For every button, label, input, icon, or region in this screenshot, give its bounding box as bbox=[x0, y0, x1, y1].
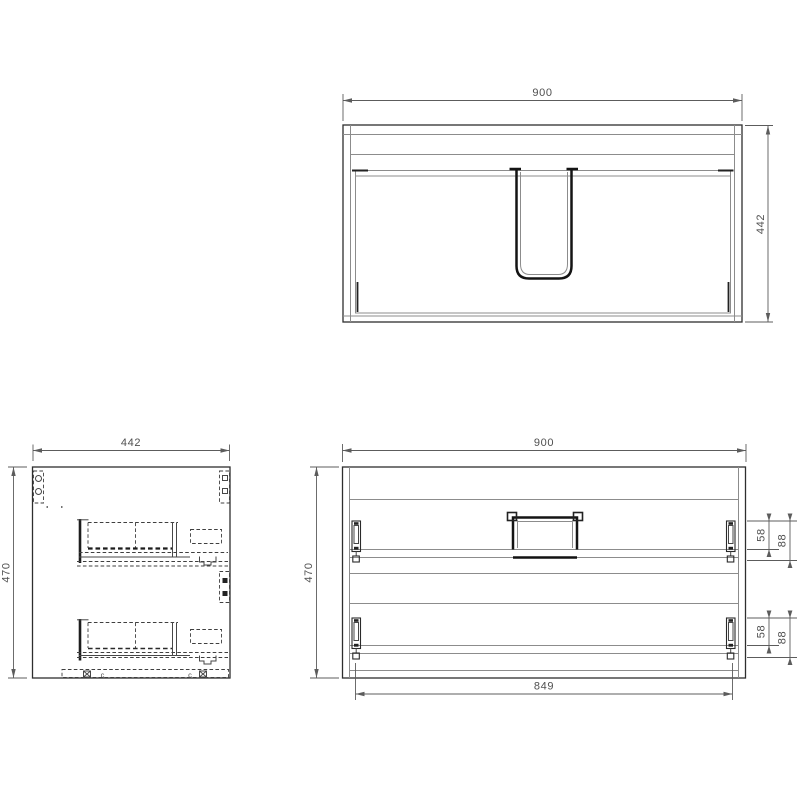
front-view: 900 470 bbox=[303, 437, 797, 700]
dim-side-width-label: 442 bbox=[121, 437, 141, 449]
dim-plan-depth: 442 bbox=[745, 126, 773, 323]
drawer-runner-bracket bbox=[352, 618, 361, 659]
drawer-runner-bracket bbox=[727, 618, 736, 659]
drawer-runner-bracket bbox=[352, 521, 361, 562]
upper-drawer-side-profile bbox=[77, 519, 228, 566]
cam-lock-icon bbox=[84, 671, 91, 677]
dim-front-height-label: 470 bbox=[303, 562, 315, 582]
dim-plan-depth-label: 442 bbox=[755, 214, 767, 234]
dim-front-inner-width-label: 849 bbox=[534, 681, 554, 693]
dim-side-width: 442 bbox=[33, 437, 230, 461]
dim-lower-rail-inner-label: 58 bbox=[756, 625, 768, 638]
drawer-runner-bracket bbox=[727, 521, 736, 562]
cabinet-technical-drawing: 900 442 442 bbox=[0, 0, 800, 800]
hanger-bracket-left bbox=[34, 471, 63, 507]
clip-label-right: c bbox=[188, 671, 192, 680]
dim-front-width: 900 bbox=[343, 437, 747, 462]
dim-lower-rail-offsets: 58 88 bbox=[747, 611, 797, 666]
dim-front-inner-width: 849 bbox=[356, 663, 733, 700]
dim-side-height: 470 bbox=[1, 467, 28, 678]
dim-plan-width-label: 900 bbox=[532, 87, 552, 99]
dim-upper-rail-inner-label: 58 bbox=[756, 528, 768, 541]
plan-view: 900 442 bbox=[343, 87, 773, 322]
technical-drawing-canvas: 900 442 442 bbox=[0, 0, 800, 800]
dim-upper-rail-offsets: 58 88 bbox=[747, 514, 797, 569]
runner-rear-mount bbox=[191, 530, 222, 544]
side-rail-hardware-right bbox=[220, 572, 230, 603]
clip-label-left: c bbox=[101, 671, 105, 680]
hanger-bracket-right bbox=[220, 471, 230, 503]
side-view: 442 470 bbox=[1, 437, 231, 680]
dim-plan-width: 900 bbox=[343, 87, 742, 121]
dim-front-height: 470 bbox=[303, 467, 339, 678]
runner-hook bbox=[200, 656, 217, 665]
sink-drain-cutout bbox=[510, 169, 579, 279]
runner-rear-mount bbox=[191, 630, 222, 644]
drain-notch bbox=[508, 513, 583, 558]
front-cabinet-body bbox=[343, 467, 746, 678]
cam-lock-icon bbox=[200, 671, 207, 677]
lower-drawer-side-profile bbox=[77, 619, 228, 664]
dim-upper-rail-outer-label: 88 bbox=[777, 534, 789, 547]
plan-cabinet-body bbox=[343, 125, 742, 322]
side-cabinet-body bbox=[33, 467, 231, 678]
dim-side-height-label: 470 bbox=[1, 562, 13, 582]
dim-front-width-label: 900 bbox=[534, 437, 554, 449]
runner-hook bbox=[200, 557, 217, 566]
dim-lower-rail-outer-label: 88 bbox=[777, 631, 789, 644]
screw-icon bbox=[36, 489, 42, 495]
screw-icon bbox=[36, 476, 42, 482]
